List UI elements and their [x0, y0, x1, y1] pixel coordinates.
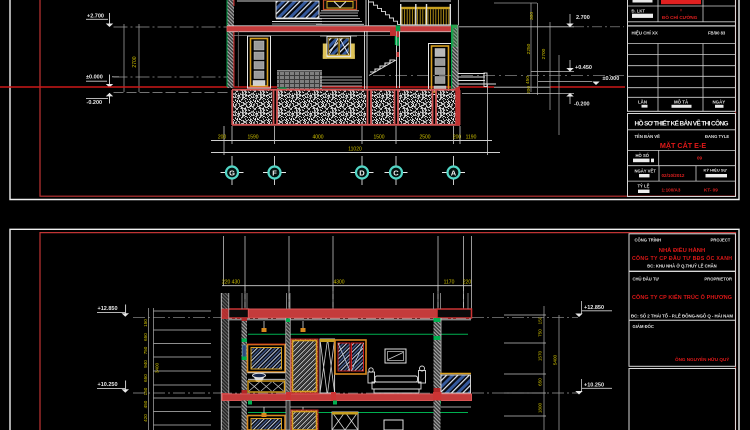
svg-text:300: 300	[529, 12, 535, 20]
svg-text:02/10/2012: 02/10/2012	[662, 173, 685, 178]
svg-text:+2.700: +2.700	[87, 14, 104, 20]
svg-text:2700: 2700	[541, 48, 547, 59]
svg-text:-0.200: -0.200	[87, 100, 103, 106]
svg-text:NGÀY VẼT: NGÀY VẼT	[635, 168, 657, 173]
svg-text:2500: 2500	[419, 135, 430, 141]
svg-text:F: F	[272, 168, 277, 177]
svg-text:200: 200	[218, 135, 227, 141]
svg-text:Đ. LKT: Đ. LKT	[632, 8, 646, 13]
svg-text:FB/90 83: FB/90 83	[708, 31, 726, 36]
svg-text:220: 220	[463, 280, 472, 286]
svg-text:1170: 1170	[444, 280, 455, 286]
svg-text:ĐC: SỐ 2 THÁI TỔ - P.LÊ ĐÔNG-N: ĐC: SỐ 2 THÁI TỔ - P.LÊ ĐÔNG-NGÔ Q - HẢI…	[631, 314, 733, 319]
svg-text:1570: 1570	[538, 350, 543, 361]
svg-text:±0.000: ±0.000	[86, 75, 103, 81]
svg-text:#: #	[680, 9, 682, 13]
svg-text:+10.250: +10.250	[98, 382, 118, 388]
svg-text:5400: 5400	[553, 354, 558, 365]
svg-text:+10.250: +10.250	[584, 383, 604, 389]
svg-text:ÔNG NGUYỄN HỮU QUÝ: ÔNG NGUYỄN HỮU QUÝ	[675, 355, 729, 362]
svg-text:LẦN: LẦN	[638, 100, 647, 105]
svg-text:450: 450	[143, 400, 148, 408]
svg-text:KÝ HIỆU SỰ: KÝ HIỆU SỰ	[704, 168, 728, 173]
svg-text:KT- 09: KT- 09	[704, 188, 718, 193]
svg-text:MÔ TẢ: MÔ TẢ	[674, 100, 689, 105]
svg-text:3400: 3400	[155, 362, 160, 373]
svg-text:1800: 1800	[538, 402, 543, 413]
svg-text:NGÀY: NGÀY	[713, 100, 726, 105]
svg-text:450: 450	[525, 76, 531, 84]
svg-text:220 430: 220 430	[222, 280, 240, 286]
svg-text:650: 650	[538, 378, 543, 386]
svg-text:2250: 2250	[526, 43, 532, 54]
svg-text:200: 200	[453, 135, 462, 141]
svg-text:940: 940	[143, 360, 148, 368]
svg-text:D: D	[359, 168, 365, 177]
svg-text:1500: 1500	[373, 135, 384, 141]
svg-text:G: G	[229, 168, 235, 177]
svg-text:TÊN BẢN VẼ: TÊN BẢN VẼ	[635, 134, 661, 139]
svg-text:ĐC: KHU NHÀ Ở Q.THUỸ LÊ CHÂN: ĐC: KHU NHÀ Ở Q.THUỸ LÊ CHÂN	[647, 264, 716, 269]
svg-text:ĐỖ CHÍ CƯỜNG: ĐỖ CHÍ CƯỜNG	[662, 13, 698, 20]
svg-text:650: 650	[143, 333, 148, 341]
svg-text:420: 420	[143, 414, 148, 422]
svg-text:ĐANG TYLE: ĐANG TYLE	[705, 134, 729, 139]
svg-text:1590: 1590	[247, 135, 258, 141]
svg-text:±0.000: ±0.000	[603, 76, 620, 82]
svg-text:-0.200: -0.200	[574, 102, 590, 108]
svg-text:A: A	[451, 168, 457, 177]
svg-text:PROJECT: PROJECT	[711, 238, 731, 243]
svg-text:11020: 11020	[348, 147, 362, 153]
svg-text:150: 150	[143, 319, 148, 327]
svg-text:CÔNG TRÌNH: CÔNG TRÌNH	[635, 238, 662, 243]
svg-text:2.700: 2.700	[576, 15, 590, 21]
svg-text:750: 750	[143, 346, 148, 354]
svg-text:+12.850: +12.850	[584, 305, 604, 311]
svg-text:TỶ LỆ: TỶ LỆ	[638, 183, 650, 188]
svg-text:09: 09	[697, 155, 703, 160]
svg-text:4000: 4000	[312, 135, 323, 141]
svg-text:NHÀ ĐIỀU HÀNH: NHÀ ĐIỀU HÀNH	[659, 247, 705, 254]
svg-text:1190: 1190	[466, 135, 477, 141]
svg-text:CHỦ ĐẦU TƯ: CHỦ ĐẦU TƯ	[633, 276, 660, 281]
svg-text:GIÁM ĐỐC: GIÁM ĐỐC	[633, 324, 654, 329]
svg-text:HIỆU CHỈ XX: HIỆU CHỈ XX	[632, 31, 658, 36]
svg-text:MẶT CẮT E-E: MẶT CẮT E-E	[660, 141, 707, 150]
svg-text:HỒ SỐ: HỒ SỐ	[636, 153, 650, 158]
svg-text:C: C	[393, 168, 399, 177]
svg-text:150: 150	[143, 387, 148, 395]
svg-text:4300: 4300	[333, 280, 344, 286]
svg-text:650: 650	[143, 374, 148, 382]
svg-text:1:100/A3: 1:100/A3	[662, 188, 681, 193]
svg-text:+12.850: +12.850	[98, 306, 118, 312]
svg-text:CÔNG TY CP ĐẦU TƯ BĐS ỐC XANH: CÔNG TY CP ĐẦU TƯ BĐS ỐC XANH	[632, 254, 732, 262]
svg-text:750: 750	[538, 329, 543, 337]
svg-text:2700: 2700	[132, 56, 138, 67]
svg-text:CÔNG TY CP KIẾN TRÚC Ô PHƯƠNG: CÔNG TY CP KIẾN TRÚC Ô PHƯƠNG	[632, 293, 732, 301]
svg-text:+0.450: +0.450	[575, 65, 592, 71]
svg-text:PROPRIETOR: PROPRIETOR	[704, 276, 732, 281]
svg-text:200: 200	[526, 86, 532, 94]
